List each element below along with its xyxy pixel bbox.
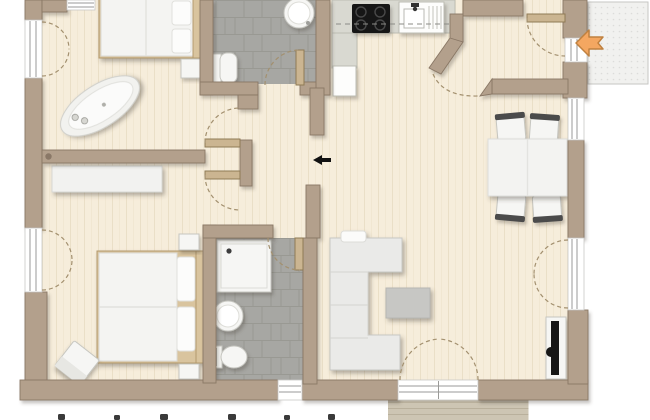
toilet-1-icon xyxy=(212,53,237,83)
fridge xyxy=(333,66,356,96)
wall xyxy=(563,0,587,38)
dining-table-icon xyxy=(488,139,567,196)
wall xyxy=(203,225,216,383)
wood-deck xyxy=(388,398,531,420)
cutoff-text-fragments xyxy=(58,414,335,420)
toilet-2-icon xyxy=(214,346,247,368)
wall xyxy=(303,238,317,384)
door-hinge-dot xyxy=(45,153,51,159)
wall xyxy=(450,14,463,42)
door-leaf-bedroom-1 xyxy=(205,139,240,147)
wall xyxy=(25,292,47,384)
wall xyxy=(200,82,258,95)
wall xyxy=(238,95,258,109)
sink-2-icon xyxy=(213,301,243,331)
wall xyxy=(463,0,523,16)
wall xyxy=(42,150,205,163)
nightstand-icon xyxy=(181,59,202,78)
wall xyxy=(25,78,42,228)
wall xyxy=(310,88,324,135)
sink-1-icon xyxy=(284,0,314,28)
window-bottom-bathroom xyxy=(278,380,302,400)
door-leaf-entry xyxy=(527,14,565,22)
window-left-top xyxy=(25,20,42,78)
floor-plan xyxy=(0,0,650,420)
shower-icon xyxy=(217,240,271,292)
wall xyxy=(203,225,273,238)
wall xyxy=(306,185,320,238)
door-leaf-bedroom-2 xyxy=(205,171,240,179)
wall xyxy=(316,0,330,95)
wall xyxy=(200,0,213,95)
wall xyxy=(568,310,588,384)
wall xyxy=(25,0,42,20)
french-door-bottom xyxy=(398,380,478,400)
wall xyxy=(20,380,278,400)
wall xyxy=(568,140,584,238)
wardrobe-icon xyxy=(52,166,162,192)
cooktop-icon xyxy=(352,4,390,33)
bed-2-icon xyxy=(97,251,207,363)
coffee-table-icon xyxy=(386,288,430,318)
nightstand-icon xyxy=(179,234,199,250)
floor-plan-drawing xyxy=(0,0,650,420)
french-door-right xyxy=(568,238,584,310)
french-door-left xyxy=(25,228,42,292)
nightstand-icon xyxy=(179,364,199,379)
wall xyxy=(240,140,252,186)
tv-icon xyxy=(546,317,566,379)
wall xyxy=(492,79,568,94)
kitchen-sink-icon xyxy=(399,2,444,33)
bed-1-icon xyxy=(99,0,207,58)
wall xyxy=(42,0,67,12)
door-leaf-bathroom-1 xyxy=(296,50,304,85)
window-top xyxy=(67,0,95,10)
door-leaf-bathroom-2 xyxy=(295,238,303,270)
window-right-dining xyxy=(568,98,584,140)
